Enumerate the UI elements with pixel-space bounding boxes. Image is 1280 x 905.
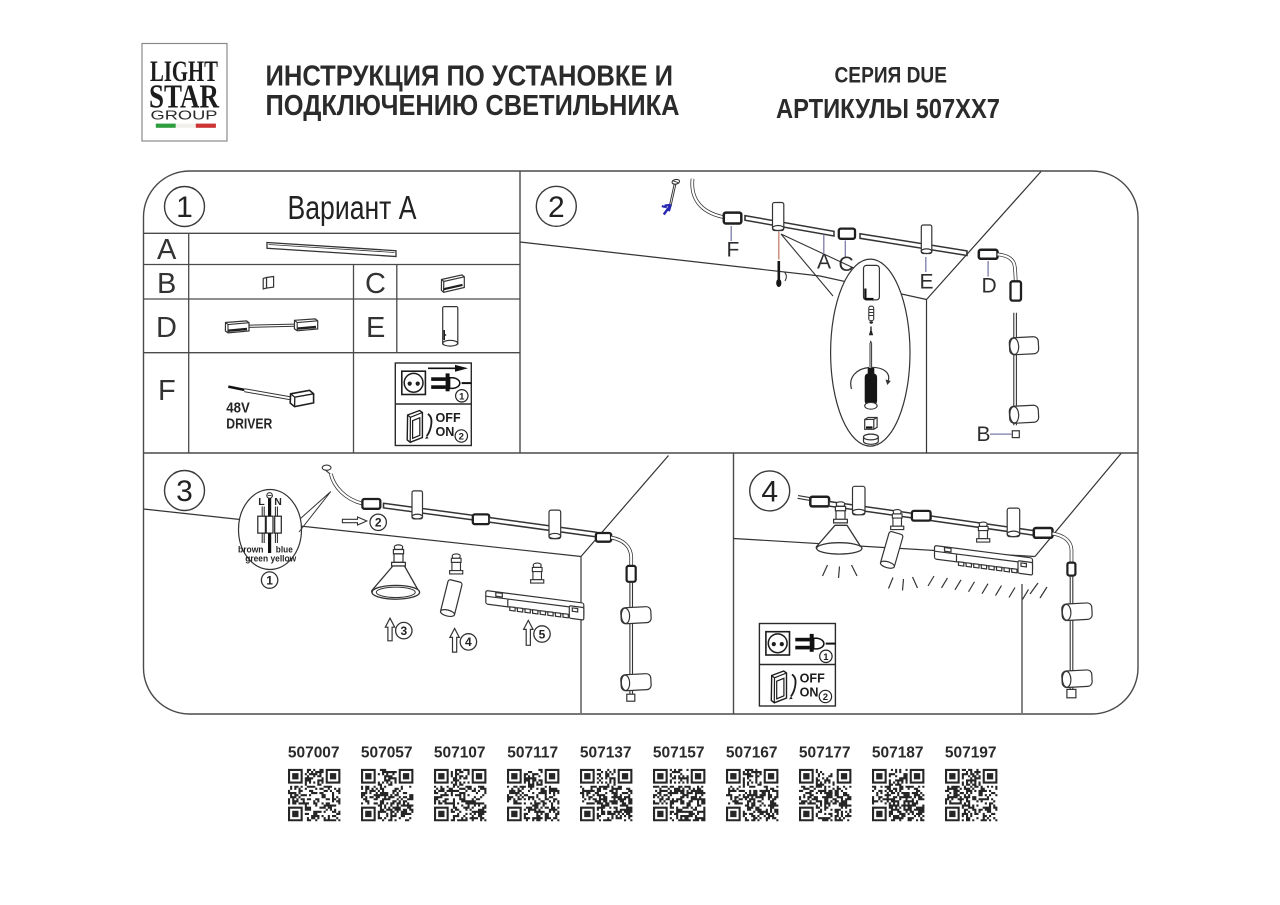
svg-text:СЕРИЯ DUE: СЕРИЯ DUE	[835, 62, 948, 87]
svg-text:48V: 48V	[226, 400, 250, 416]
svg-text:507107: 507107	[434, 744, 486, 761]
svg-text:D: D	[982, 275, 997, 298]
svg-text:F: F	[158, 375, 176, 407]
svg-text:Вариант А: Вариант А	[288, 190, 418, 227]
svg-text:1: 1	[266, 573, 273, 587]
svg-text:4: 4	[465, 635, 472, 649]
svg-text:GROUP: GROUP	[151, 108, 218, 122]
svg-text:507157: 507157	[653, 744, 705, 761]
svg-text:5: 5	[539, 627, 546, 641]
svg-text:ИНСТРУКЦИЯ ПО УСТАНОВКЕ И: ИНСТРУКЦИЯ ПО УСТАНОВКЕ И	[266, 61, 674, 93]
svg-text:507197: 507197	[945, 744, 997, 761]
svg-text:507057: 507057	[361, 744, 413, 761]
svg-text:A: A	[817, 251, 831, 274]
svg-text:507117: 507117	[507, 744, 558, 761]
svg-text:А: А	[157, 234, 177, 266]
svg-text:3: 3	[176, 475, 193, 508]
svg-text:B: B	[977, 423, 991, 446]
svg-text:2: 2	[548, 191, 565, 224]
svg-text:green yellow: green yellow	[245, 554, 296, 565]
svg-text:E: E	[366, 312, 385, 344]
svg-text:507167: 507167	[726, 744, 778, 761]
svg-text:2: 2	[375, 516, 382, 530]
svg-text:B: B	[157, 268, 176, 300]
svg-text:АРТИКУЛЫ 507XX7: АРТИКУЛЫ 507XX7	[776, 93, 1000, 124]
svg-text:3: 3	[400, 624, 407, 638]
svg-text:F: F	[727, 239, 740, 262]
svg-text:507187: 507187	[872, 744, 924, 761]
svg-text:507137: 507137	[580, 744, 632, 761]
svg-text:C: C	[365, 268, 386, 300]
svg-text:N: N	[274, 496, 282, 508]
svg-text:507177: 507177	[799, 744, 851, 761]
svg-text:DRIVER: DRIVER	[226, 416, 272, 432]
svg-text:D: D	[156, 312, 177, 344]
svg-text:1: 1	[176, 191, 193, 224]
svg-text:4: 4	[761, 475, 778, 508]
svg-text:ПОДКЛЮЧЕНИЮ СВЕТИЛЬНИКА: ПОДКЛЮЧЕНИЮ СВЕТИЛЬНИКА	[266, 90, 680, 122]
svg-text:L: L	[258, 496, 265, 508]
svg-text:E: E	[920, 271, 934, 294]
svg-text:507007: 507007	[288, 744, 340, 761]
